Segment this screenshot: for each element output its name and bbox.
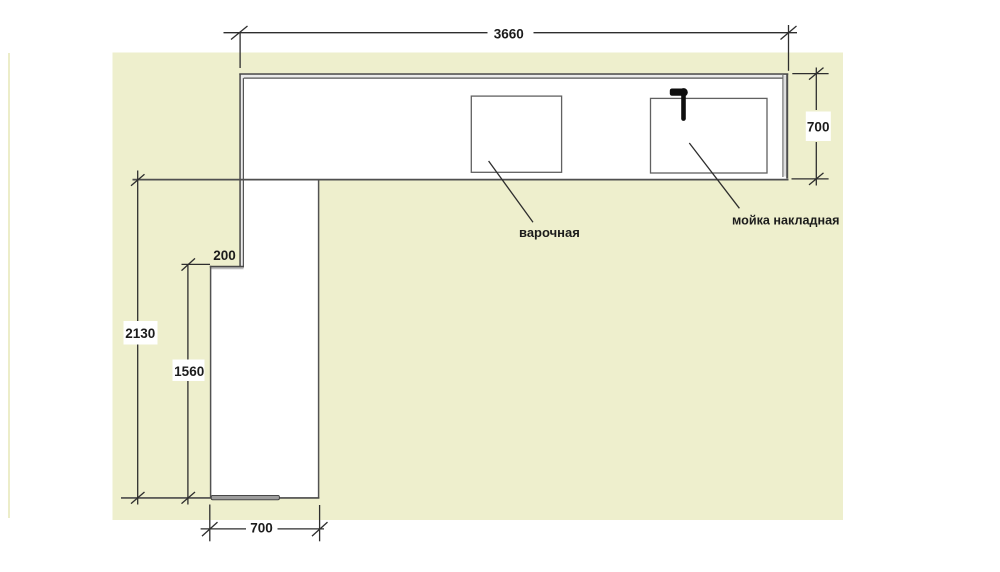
svg-text:200: 200 xyxy=(213,248,236,263)
svg-text:2130: 2130 xyxy=(125,326,155,341)
svg-text:3660: 3660 xyxy=(494,26,524,41)
svg-text:1560: 1560 xyxy=(174,364,204,379)
svg-text:варочная: варочная xyxy=(519,225,580,240)
svg-text:мойка накладная: мойка накладная xyxy=(732,214,839,228)
svg-text:700: 700 xyxy=(250,521,273,536)
svg-text:700: 700 xyxy=(807,119,830,134)
